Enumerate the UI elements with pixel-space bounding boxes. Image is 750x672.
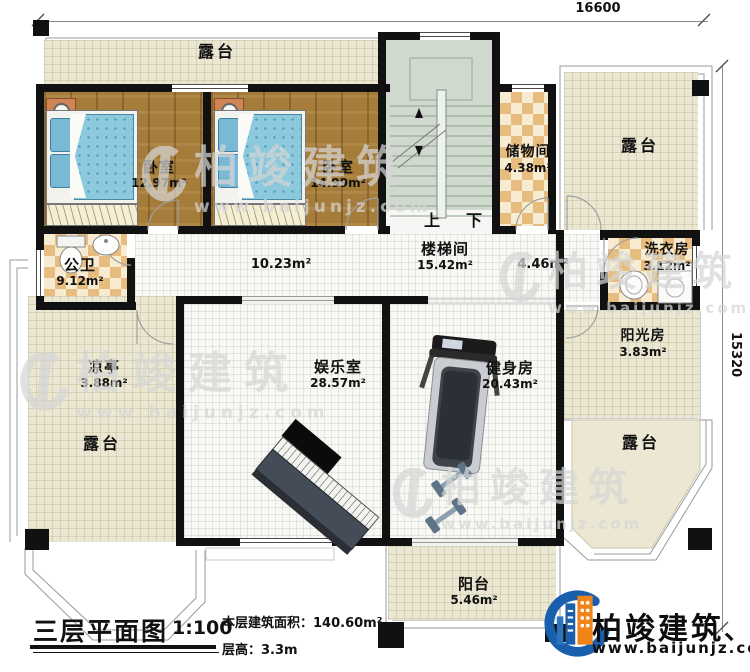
room-label-gym: 健身房 20.43m² [482,359,538,391]
room-name: 公卫 [56,256,103,274]
room-label-laundry: 洗衣房 3.12m² [643,242,690,273]
hall-area-label: 4.46m² [517,257,568,272]
room-area: 15.42m² [417,258,473,272]
room-area: 14.99m² [310,176,366,190]
room-area: 5.46m² [450,593,497,607]
wall-opening [428,299,556,303]
room-label-bedroom-left: 卧室 12.97m² [131,158,187,190]
room-label-storage: 储物间 4.38m² [504,144,551,175]
room-label-terrace-right: 露台 [621,136,659,155]
room-label-stairwell: 楼梯间 15.42m² [417,240,473,272]
stair-down-label: 下 [466,207,482,231]
treadmill-icon [413,334,503,475]
room-label-terrace-top: 露台 [198,42,236,61]
room-name: 露台 [622,433,660,452]
room-area: 4.38m² [504,161,551,175]
floor-plan: 16600 15320 [0,0,750,672]
room-area: 28.57m² [310,376,366,390]
room-name: 阳台 [450,575,497,593]
laundry-sink-icon [620,271,648,299]
room-name: 阳光房 [619,328,666,345]
room-name: 楼梯间 [417,240,473,258]
room-label-bedroom-right: 卧室 14.99m² [310,158,366,190]
window-sill [206,548,334,560]
title-underline [33,652,219,653]
dumbbell-icon [424,497,467,534]
room-name: 健身房 [482,359,538,377]
drawing-title: 三层平面图 [33,612,168,648]
room-name: 卧室 [131,158,187,176]
room-area: 9.12m² [56,274,103,288]
room-label-sunroom: 阳光房 3.83m² [619,328,666,359]
room-name: 储物间 [504,144,551,161]
floor-height-note: 层高：3.3m [222,639,298,658]
room-area: 12.97m² [131,176,187,190]
room-area: 20.43m² [482,377,538,391]
room-label-entertainment: 娱乐室 28.57m² [310,358,366,390]
room-name: 凉亭 [80,358,127,376]
sink-icon [93,235,119,255]
room-name: 洗衣房 [643,242,690,259]
room-label-terrace-left: 露台 [83,434,121,453]
title-underline [30,645,216,649]
company-website: www.baijunjz.com [592,639,750,657]
piano-icon [250,419,393,555]
floor-area-note: 本层建筑面积：140.60m² [222,612,382,631]
room-name: 露台 [621,136,659,155]
room-area: 3.12m² [643,259,690,273]
room-area: 3.88m² [80,376,127,390]
room-label-balcony: 阳台 5.46m² [450,575,497,607]
room-area: 3.83m² [619,345,666,359]
room-name: 露台 [198,42,236,61]
room-name: 娱乐室 [310,358,366,376]
stairs [390,58,492,218]
stair-up-label: 上 [424,207,440,231]
room-label-bathroom: 公卫 9.12m² [56,256,103,288]
room-name: 卧室 [310,158,366,176]
room-name: 露台 [83,434,121,453]
room-label-pavilion: 凉亭 3.88m² [80,358,127,390]
corridor-area-label: 10.23m² [251,257,311,272]
room-label-terrace-bottom-right: 露台 [622,433,660,452]
